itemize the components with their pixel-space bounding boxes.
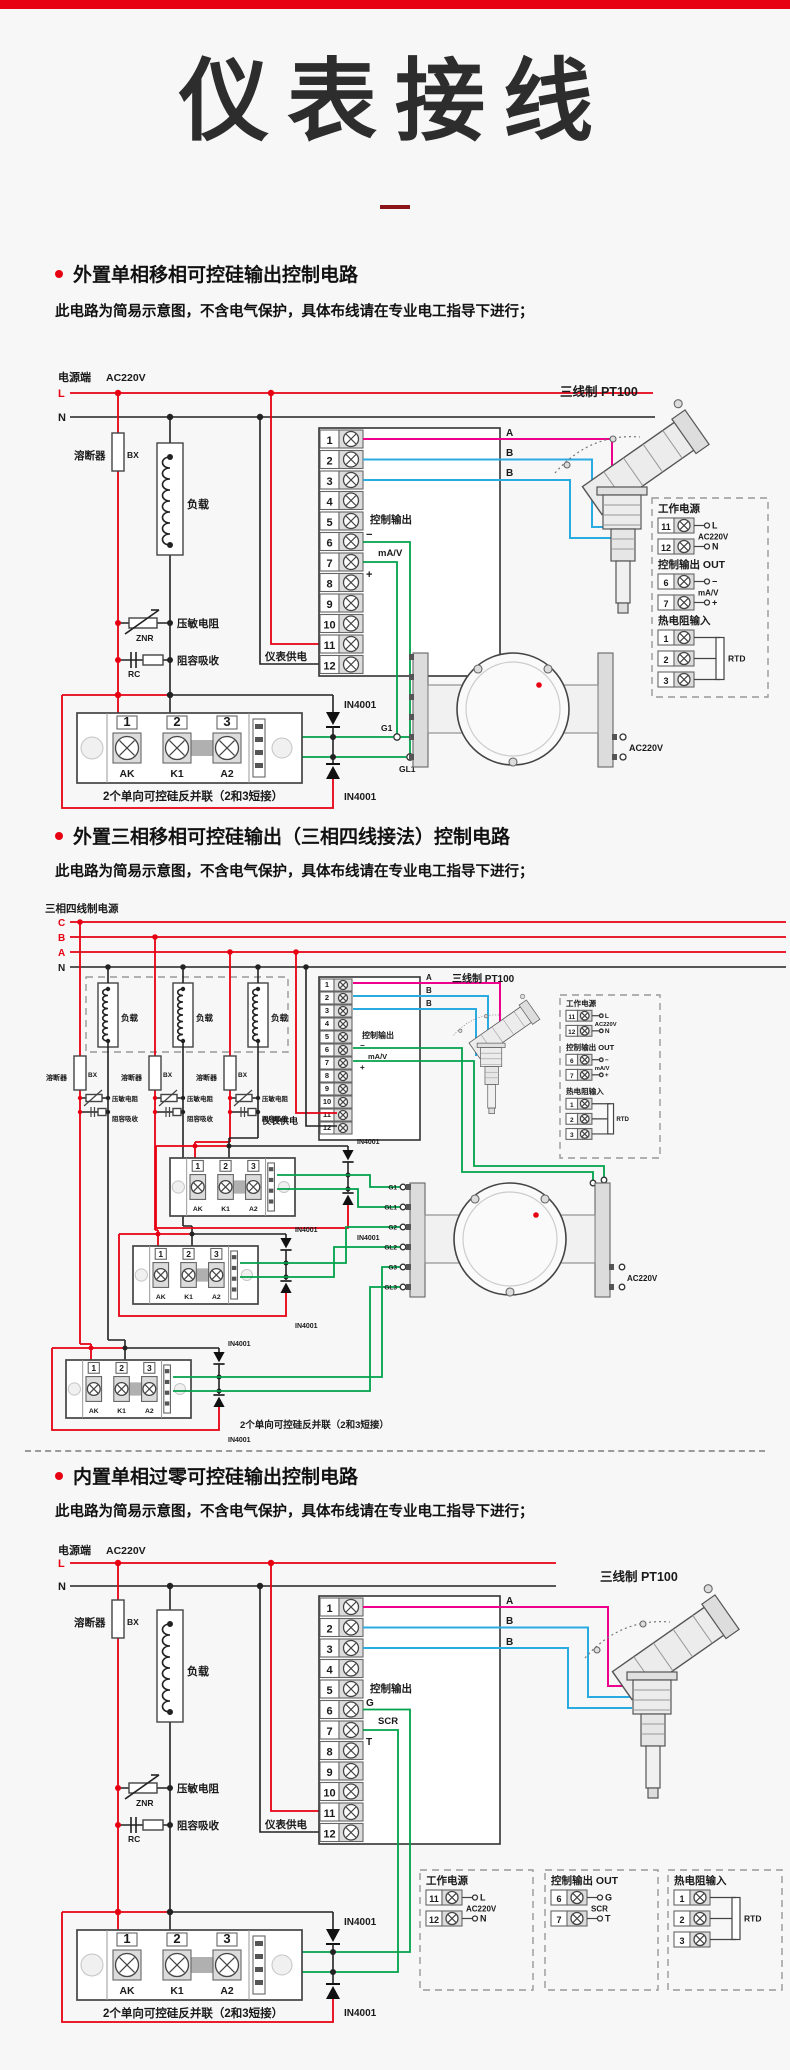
control-out-group: 控制输出 OUT67−+mA/V [566,1042,615,1080]
svg-text:溶断器: 溶断器 [196,1073,218,1082]
plus-label: + [366,569,372,581]
svg-text:A: A [426,973,432,982]
thyristor-module: 1AK2K13A2 [77,713,302,783]
svg-text:IN4001: IN4001 [344,1917,377,1928]
svg-text:控制输出 OUT: 控制输出 OUT [566,1042,615,1052]
svg-text:N: N [480,1914,487,1924]
svg-text:负载: 负载 [271,1013,289,1023]
power-end-label: 电源端 [58,370,91,384]
svg-text:控制输出: 控制输出 [362,1030,394,1040]
wiring-diagram-three-phase: 三相四线制电源 C B A N 负载 负载 负载 溶断器 溶断器 溶断器 BX [0,900,790,1440]
svg-text:5: 5 [326,1685,332,1697]
svg-text:IN4001: IN4001 [344,2008,377,2019]
svg-text:1: 1 [326,1603,332,1615]
line-b-label: B [58,933,65,944]
svg-text:AC220V: AC220V [595,1022,617,1028]
svg-text:1: 1 [326,435,332,447]
g1-label: G1 [381,723,393,733]
svg-text:IN4001: IN4001 [228,1437,251,1444]
svg-text:SCR: SCR [591,1905,608,1914]
line-a-label: A [58,948,65,959]
svg-text:B: B [426,999,432,1008]
svg-text:10: 10 [323,620,335,632]
section-1-heading: 外置单相移相可控硅输出控制电路 [55,260,358,287]
control-out-box [545,1870,658,1990]
minus-label: − [366,529,372,541]
svg-text:10: 10 [323,1097,331,1106]
section-3-caption: 此电路为简易示意图，不含电气保护，具体布线请在专业电工指导下进行； [55,1500,534,1521]
three-phase-label: 三相四线制电源 [45,902,119,915]
svg-text:L: L [712,521,718,531]
svg-text:6: 6 [570,1058,574,1065]
svg-text:5: 5 [326,517,332,529]
svg-text:B: B [506,1616,513,1627]
svg-text:控制输出 OUT: 控制输出 OUT [551,1874,619,1887]
svg-text:11: 11 [323,1110,331,1119]
svg-text:1: 1 [123,1931,130,1946]
wiring-diagram-zero-cross: 电源端 AC220V L N 溶断器 BX 负载 压敏电阻 ZNR 阻容吸收 R… [0,1540,790,2070]
svg-text:热电阻输入: 热电阻输入 [566,1086,604,1096]
rc-name-label: 阻容吸收 [177,654,219,667]
bullet-icon [55,270,63,278]
svg-text:3: 3 [663,676,668,686]
section-separator [25,1450,765,1452]
section-2-caption: 此电路为简易示意图，不含电气保护，具体布线请在专业电工指导下进行； [55,860,534,881]
znr-label: ZNR [136,633,153,643]
svg-text:三线制 PT100: 三线制 PT100 [600,1569,678,1584]
module-note: 2个单向可控硅反并联（2和3短接） [103,2006,283,2020]
svg-text:热电阻输入: 热电阻输入 [658,614,711,627]
svg-text:电源端: 电源端 [58,1543,91,1557]
svg-text:N: N [58,1581,66,1593]
svg-text:G1: G1 [388,1185,397,1192]
rc-label: RC [128,669,140,679]
svg-text:12: 12 [323,1829,335,1841]
svg-text:G2: G2 [388,1225,397,1232]
svg-text:3: 3 [326,476,332,488]
svg-text:+: + [605,1072,609,1079]
svg-text:压敏电阻: 压敏电阻 [112,1094,139,1103]
svg-text:2: 2 [325,993,329,1002]
svg-text:6: 6 [663,578,668,588]
svg-text:负载: 负载 [187,1664,209,1678]
svg-text:3: 3 [214,1249,219,1259]
svg-text:1: 1 [91,1363,96,1373]
in4001-label-1: IN4001 [344,700,377,711]
bullet-icon [55,1472,63,1480]
svg-text:1: 1 [570,1102,574,1109]
svg-text:负载: 负载 [121,1013,139,1023]
work-power-group: 工作电源1112LNAC220V [566,998,617,1036]
svg-text:3: 3 [251,1161,256,1171]
ctrl-out-label: 控制输出 [370,513,412,526]
svg-text:T: T [605,1914,611,1924]
svg-text:−: − [712,577,717,587]
svg-text:2: 2 [186,1249,191,1259]
svg-text:K1: K1 [184,1294,193,1301]
work-power-box [420,1870,533,1990]
work-power-group: 工作电源1112LNAC220V [658,502,729,554]
svg-text:G3: G3 [388,1265,397,1272]
svg-text:三线制 PT100: 三线制 PT100 [452,972,515,985]
svg-text:溶断器: 溶断器 [74,1616,106,1629]
in4001-label-2: IN4001 [344,792,377,803]
svg-text:10: 10 [323,1788,335,1800]
svg-text:控制输出 OUT: 控制输出 OUT [658,558,726,571]
svg-text:1: 1 [195,1161,200,1171]
svg-text:阻容吸收: 阻容吸收 [112,1114,139,1123]
svg-text:IN4001: IN4001 [295,1323,318,1330]
rtd-input-group: 热电阻输入123RTD [674,1874,761,1947]
svg-text:2: 2 [679,1915,684,1925]
svg-text:N: N [712,542,719,552]
svg-text:+: + [360,1063,365,1072]
svg-text:6: 6 [326,538,332,550]
svg-text:2: 2 [173,714,180,729]
svg-text:L: L [480,1893,486,1903]
svg-text:3: 3 [326,1644,332,1656]
svg-text:RC: RC [128,1834,140,1844]
svg-text:+: + [712,598,717,608]
pt100-label: 三线制 PT100 [560,384,638,399]
svg-text:1: 1 [158,1249,163,1259]
load-label: 负载 [187,497,209,511]
svg-text:热电阻输入: 热电阻输入 [674,1874,727,1887]
svg-text:B: B [506,1637,513,1648]
mav-label: mA/V [378,548,403,559]
svg-text:7: 7 [325,1058,329,1067]
svg-text:AK: AK [119,769,135,780]
svg-text:1: 1 [663,634,668,644]
page-title: 仪表接线 [0,28,790,158]
svg-text:3: 3 [570,1132,574,1139]
svg-text:mA/V: mA/V [595,1066,610,1072]
rtd-input-group: 热电阻输入123RTD [658,614,745,687]
svg-text:7: 7 [326,558,332,570]
svg-text:B: B [426,986,432,995]
svg-text:3: 3 [147,1363,152,1373]
svg-text:K1: K1 [170,1986,184,1997]
svg-text:12: 12 [323,1123,331,1132]
svg-text:AC220V: AC220V [466,1905,497,1914]
svg-text:BX: BX [127,1617,139,1627]
svg-text:K1: K1 [221,1206,230,1213]
svg-text:BX: BX [88,1072,98,1079]
svg-text:7: 7 [663,599,668,609]
svg-text:L: L [605,1013,609,1020]
fuse-label: 溶断器 [74,449,106,462]
svg-text:8: 8 [326,579,332,591]
svg-text:3: 3 [325,1006,329,1015]
svg-text:RTD: RTD [616,1116,629,1123]
wiring-diagram-single-phase: 电源端 AC220V L N 溶断器 BX 负载 压敏电阻 ZNR 阻容吸收 R… [0,340,790,820]
svg-text:控制输出: 控制输出 [370,1682,412,1695]
rc-symbol [143,1820,163,1830]
svg-text:A2: A2 [145,1408,154,1415]
svg-text:阻容吸收: 阻容吸收 [187,1114,214,1123]
svg-text:2: 2 [326,456,332,468]
svg-text:12: 12 [661,543,671,553]
svg-text:GL2: GL2 [384,1245,397,1252]
svg-text:4: 4 [326,1665,333,1677]
thyristor-module-3: 1AK2K13A2 [66,1360,191,1418]
varistor-symbol [129,1783,157,1793]
svg-text:4: 4 [326,497,333,509]
svg-text:11: 11 [429,1894,439,1904]
svg-text:A2: A2 [220,1986,234,1997]
trigger-ac220v-label: AC220V [629,743,663,753]
module-note: 2个单向可控硅反并联（2和3短接） [103,789,283,803]
section-3-heading: 内置单相过零可控硅输出控制电路 [55,1462,358,1489]
thyristor-module-1: 1AK2K13A2 [170,1158,295,1216]
ac220v-label: AC220V [106,372,146,384]
rc-symbol [143,655,163,665]
svg-text:12: 12 [323,661,335,673]
svg-text:6: 6 [326,1706,332,1718]
svg-text:mA/V: mA/V [368,1052,387,1061]
svg-text:A2: A2 [220,769,234,780]
svg-text:11: 11 [324,1808,336,1820]
gate-pin-labels: G1GL1G2GL2G3GL3 [384,1185,397,1292]
wire-b2-label: B [506,468,513,479]
svg-text:IN4001: IN4001 [295,1227,318,1234]
line-n-label: N [58,963,65,974]
svg-text:2: 2 [663,655,668,665]
work-power-group: 工作电源1112LNAC220V [426,1874,497,1926]
svg-text:11: 11 [661,522,671,532]
svg-text:K1: K1 [170,769,184,780]
svg-text:AC220V: AC220V [698,533,729,542]
svg-text:工作电源: 工作电源 [426,1874,468,1887]
svg-text:N: N [605,1028,610,1035]
svg-text:9: 9 [326,599,332,611]
svg-text:5: 5 [325,1032,329,1041]
top-accent-bar [0,0,790,9]
svg-text:7: 7 [556,1915,561,1925]
svg-text:工作电源: 工作电源 [566,998,597,1008]
svg-text:GL1: GL1 [384,1205,397,1212]
svg-text:负载: 负载 [196,1013,214,1023]
svg-text:AK: AK [156,1294,166,1301]
rtd-input-group: 热电阻输入123RTD [566,1086,630,1139]
wire-a-label: A [506,428,513,439]
svg-text:BX: BX [238,1072,248,1079]
pt100-sensor [454,993,541,1113]
svg-text:11: 11 [568,1014,575,1021]
module-note: 2个单向可控硅反并联（2和3短接） [240,1419,389,1431]
control-out-group: 控制输出 OUT67−+mA/V [658,558,726,610]
line-n-label: N [58,412,66,424]
svg-text:GL3: GL3 [384,1285,397,1292]
svg-text:IN4001: IN4001 [228,1341,251,1348]
title-divider [380,205,410,209]
svg-text:3: 3 [223,1931,230,1946]
trigger-board [406,1183,614,1297]
line-c-label: C [58,918,65,929]
section-1-caption: 此电路为简易示意图，不含电气保护，具体布线请在专业电工指导下进行； [55,300,534,321]
svg-text:−: − [605,1057,609,1064]
section-1-title: 外置单相移相可控硅输出控制电路 [73,260,358,287]
wire-b1-label: B [506,448,513,459]
section-2-title: 外置三相移相可控硅输出（三相四线接法）控制电路 [73,822,510,849]
fuse-symbol [112,1600,124,1638]
thyristor-module: 1AK2K13A2 [77,1930,302,2000]
svg-text:6: 6 [325,1045,329,1054]
svg-text:溶断器: 溶断器 [46,1073,68,1082]
svg-text:9: 9 [325,1084,329,1093]
svg-text:A2: A2 [249,1206,258,1213]
control-out-group: 控制输出 OUT67GTSCR [551,1874,619,1926]
section-3-title: 内置单相过零可控硅输出控制电路 [73,1462,358,1489]
svg-text:2: 2 [326,1624,332,1636]
svg-text:溶断器: 溶断器 [121,1073,143,1082]
svg-text:12: 12 [429,1915,439,1925]
svg-text:7: 7 [570,1073,574,1080]
varistor-label: 压敏电阻 [177,617,219,630]
svg-text:3: 3 [679,1936,684,1946]
svg-text:1: 1 [123,714,130,729]
varistor-symbol [129,618,157,628]
svg-text:工作电源: 工作电源 [658,502,700,515]
svg-text:2: 2 [570,1117,574,1124]
svg-text:11: 11 [324,640,336,652]
section-2-heading: 外置三相移相可控硅输出（三相四线接法）控制电路 [55,822,510,849]
svg-text:RTD: RTD [728,654,745,664]
svg-text:2: 2 [223,1161,228,1171]
rtd-input-box [668,1870,782,1990]
svg-text:3: 3 [223,714,230,729]
svg-text:AK: AK [89,1408,99,1415]
svg-text:A: A [506,1596,513,1607]
svg-text:仪表供电: 仪表供电 [261,1115,298,1126]
svg-text:ZNR: ZNR [136,1798,153,1808]
svg-text:8: 8 [325,1071,329,1080]
svg-text:AK: AK [119,1986,135,1997]
terminal-block: 123456789101112 [320,979,352,1134]
svg-text:G: G [366,1698,374,1709]
svg-text:IN4001: IN4001 [357,1139,380,1146]
svg-text:6: 6 [556,1894,561,1904]
fuse-symbol [112,433,124,471]
svg-text:mA/V: mA/V [698,589,719,598]
svg-text:A2: A2 [212,1294,221,1301]
svg-text:IN4001: IN4001 [357,1235,380,1242]
svg-text:BX: BX [163,1072,173,1079]
svg-text:9: 9 [326,1767,332,1779]
svg-text:SCR: SCR [378,1716,398,1727]
bullet-icon [55,832,63,840]
svg-text:12: 12 [568,1029,576,1036]
svg-text:阻容吸收: 阻容吸收 [177,1819,219,1832]
svg-text:AK: AK [193,1206,203,1213]
svg-text:压敏电阻: 压敏电阻 [177,1782,219,1795]
svg-text:T: T [366,1737,372,1748]
svg-text:G: G [605,1893,612,1903]
meter-supply-label: 仪表供电 [264,650,307,663]
line-l-label: L [58,388,65,400]
svg-text:K1: K1 [117,1408,126,1415]
svg-text:AC220V: AC220V [627,1274,658,1283]
svg-text:L: L [58,1558,65,1570]
svg-text:RTD: RTD [744,1914,761,1924]
svg-text:压敏电阻: 压敏电阻 [187,1094,214,1103]
svg-text:7: 7 [326,1726,332,1738]
bx-label: BX [127,450,139,460]
svg-text:AC220V: AC220V [106,1545,146,1557]
svg-text:1: 1 [325,980,329,989]
svg-text:2: 2 [173,1931,180,1946]
thyristor-module-2: 1AK2K13A2 [133,1246,258,1304]
svg-text:压敏电阻: 压敏电阻 [262,1094,289,1103]
svg-text:仪表供电: 仪表供电 [264,1818,307,1831]
svg-text:1: 1 [679,1894,684,1904]
svg-text:8: 8 [326,1747,332,1759]
svg-text:2: 2 [119,1363,124,1373]
